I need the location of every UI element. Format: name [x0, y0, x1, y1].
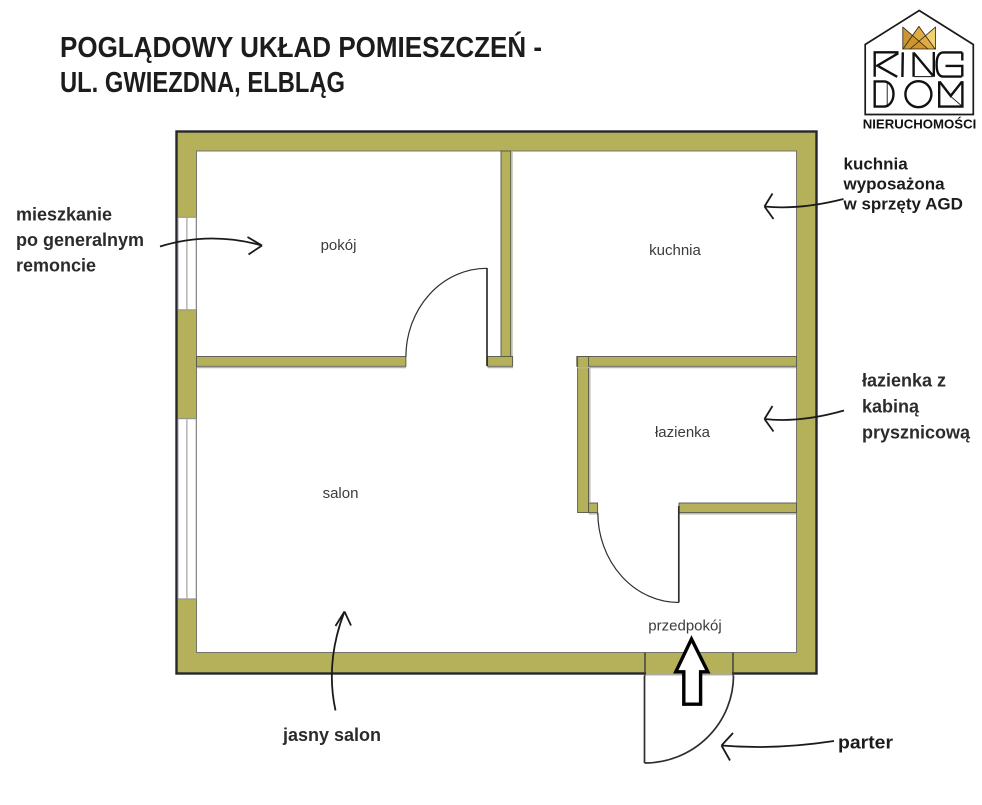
- svg-text:kabiną: kabiną: [862, 397, 920, 417]
- svg-text:kuchnia: kuchnia: [649, 242, 701, 259]
- svg-text:salon: salon: [323, 485, 359, 502]
- svg-text:w sprzęty AGD: w sprzęty AGD: [843, 195, 963, 214]
- svg-text:pokój: pokój: [321, 237, 357, 254]
- svg-text:wyposażona: wyposażona: [843, 175, 946, 194]
- svg-text:łazienka: łazienka: [655, 424, 711, 441]
- svg-text:łazienka z: łazienka z: [862, 371, 946, 391]
- svg-text:kuchnia: kuchnia: [844, 155, 909, 174]
- svg-text:remoncie: remoncie: [16, 256, 96, 276]
- svg-text:UL. GWIEZDNA, ELBLĄG: UL. GWIEZDNA, ELBLĄG: [60, 67, 345, 99]
- svg-text:przedpokój: przedpokój: [648, 618, 721, 635]
- svg-text:jasny salon: jasny salon: [282, 725, 381, 745]
- svg-text:POGLĄDOWY UKŁAD POMIESZCZEŃ -: POGLĄDOWY UKŁAD POMIESZCZEŃ -: [60, 30, 542, 64]
- svg-text:mieszkanie: mieszkanie: [16, 205, 112, 225]
- svg-text:prysznicową: prysznicową: [862, 423, 971, 443]
- svg-text:po generalnym: po generalnym: [16, 230, 144, 250]
- svg-text:NIERUCHOMOŚCI: NIERUCHOMOŚCI: [863, 117, 977, 132]
- svg-text:parter: parter: [838, 733, 893, 753]
